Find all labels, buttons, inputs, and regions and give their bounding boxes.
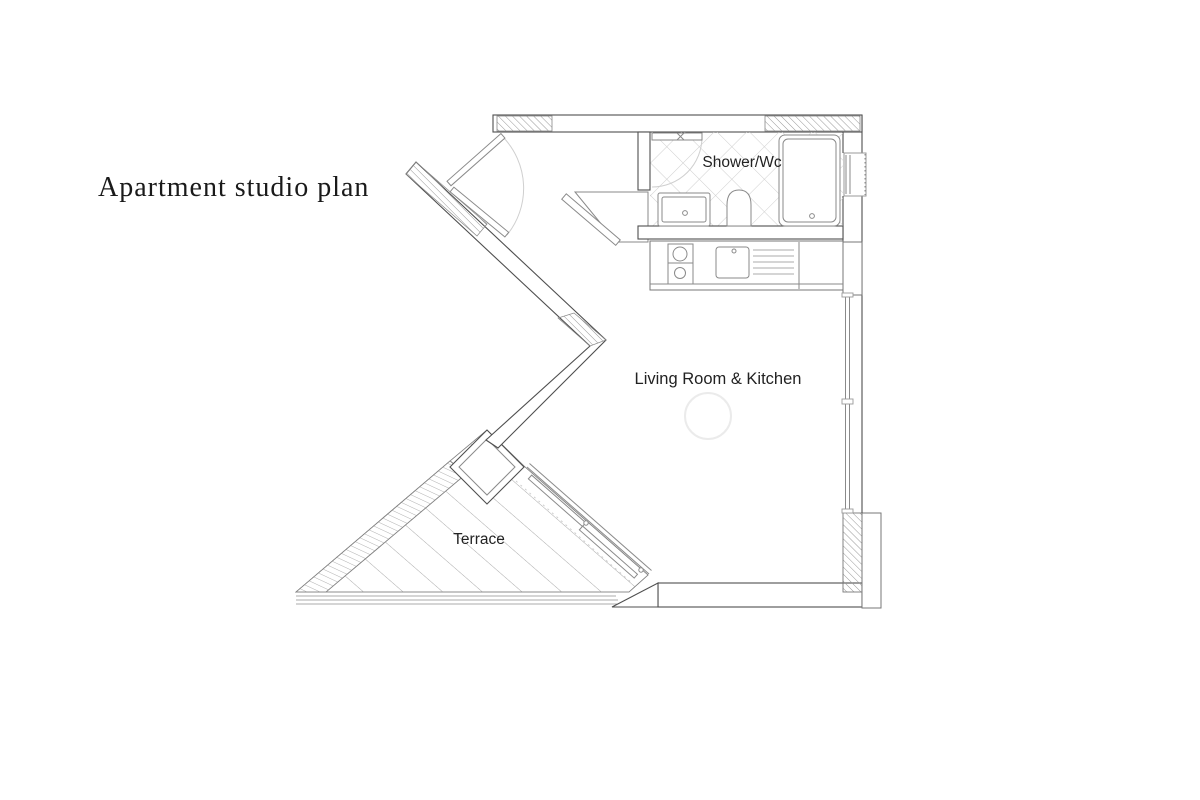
kitchen: [650, 241, 843, 290]
bathroom: Shower/Wc: [638, 132, 843, 239]
kitchen-sink: [716, 247, 749, 278]
top-wall-hatch-left: [497, 116, 552, 131]
vestibule-closet: [562, 192, 648, 245]
toilet: [727, 190, 751, 226]
cooktop: [668, 244, 693, 284]
bathroom-bottom-wall: [638, 226, 843, 239]
shower-tray: [779, 135, 840, 226]
bathroom-door-leaf: [652, 133, 702, 140]
living-room-window: [842, 293, 853, 513]
vent-window: [844, 153, 866, 196]
door-leaf-closed: [447, 134, 505, 186]
top-wall-hatch-right: [765, 116, 860, 131]
kitchen-wall-pier: [843, 242, 862, 295]
terrace-edge-steps: [296, 596, 620, 604]
washbasin: [658, 193, 710, 226]
corner-pier-outer: [862, 513, 881, 608]
bathroom-left-wall: [638, 132, 650, 190]
page-title: Apartment studio plan: [98, 172, 369, 203]
corner-pier-hatched: [843, 513, 862, 592]
top-wall: [493, 115, 862, 132]
floor-plan-drawing: Shower/Wc Living Room & Kitchen Terrace: [0, 0, 1200, 800]
bottom-wall: [612, 583, 862, 607]
panel-handle: [584, 521, 588, 525]
panel-handle: [639, 568, 643, 572]
bathroom-label: Shower/Wc: [702, 154, 781, 171]
terrace-label: Terrace: [453, 531, 505, 548]
door-swing-arc: [503, 137, 524, 235]
floor-plan-page: Shower/Wc Living Room & Kitchen Terrace: [0, 0, 1200, 800]
living-room: Living Room & Kitchen: [635, 370, 802, 439]
right-wall: [842, 115, 866, 513]
living-room-label: Living Room & Kitchen: [635, 370, 802, 388]
ceiling-light: [685, 393, 731, 439]
terrace: [296, 430, 652, 604]
chevron-wall-hatch-entry: [406, 162, 487, 236]
